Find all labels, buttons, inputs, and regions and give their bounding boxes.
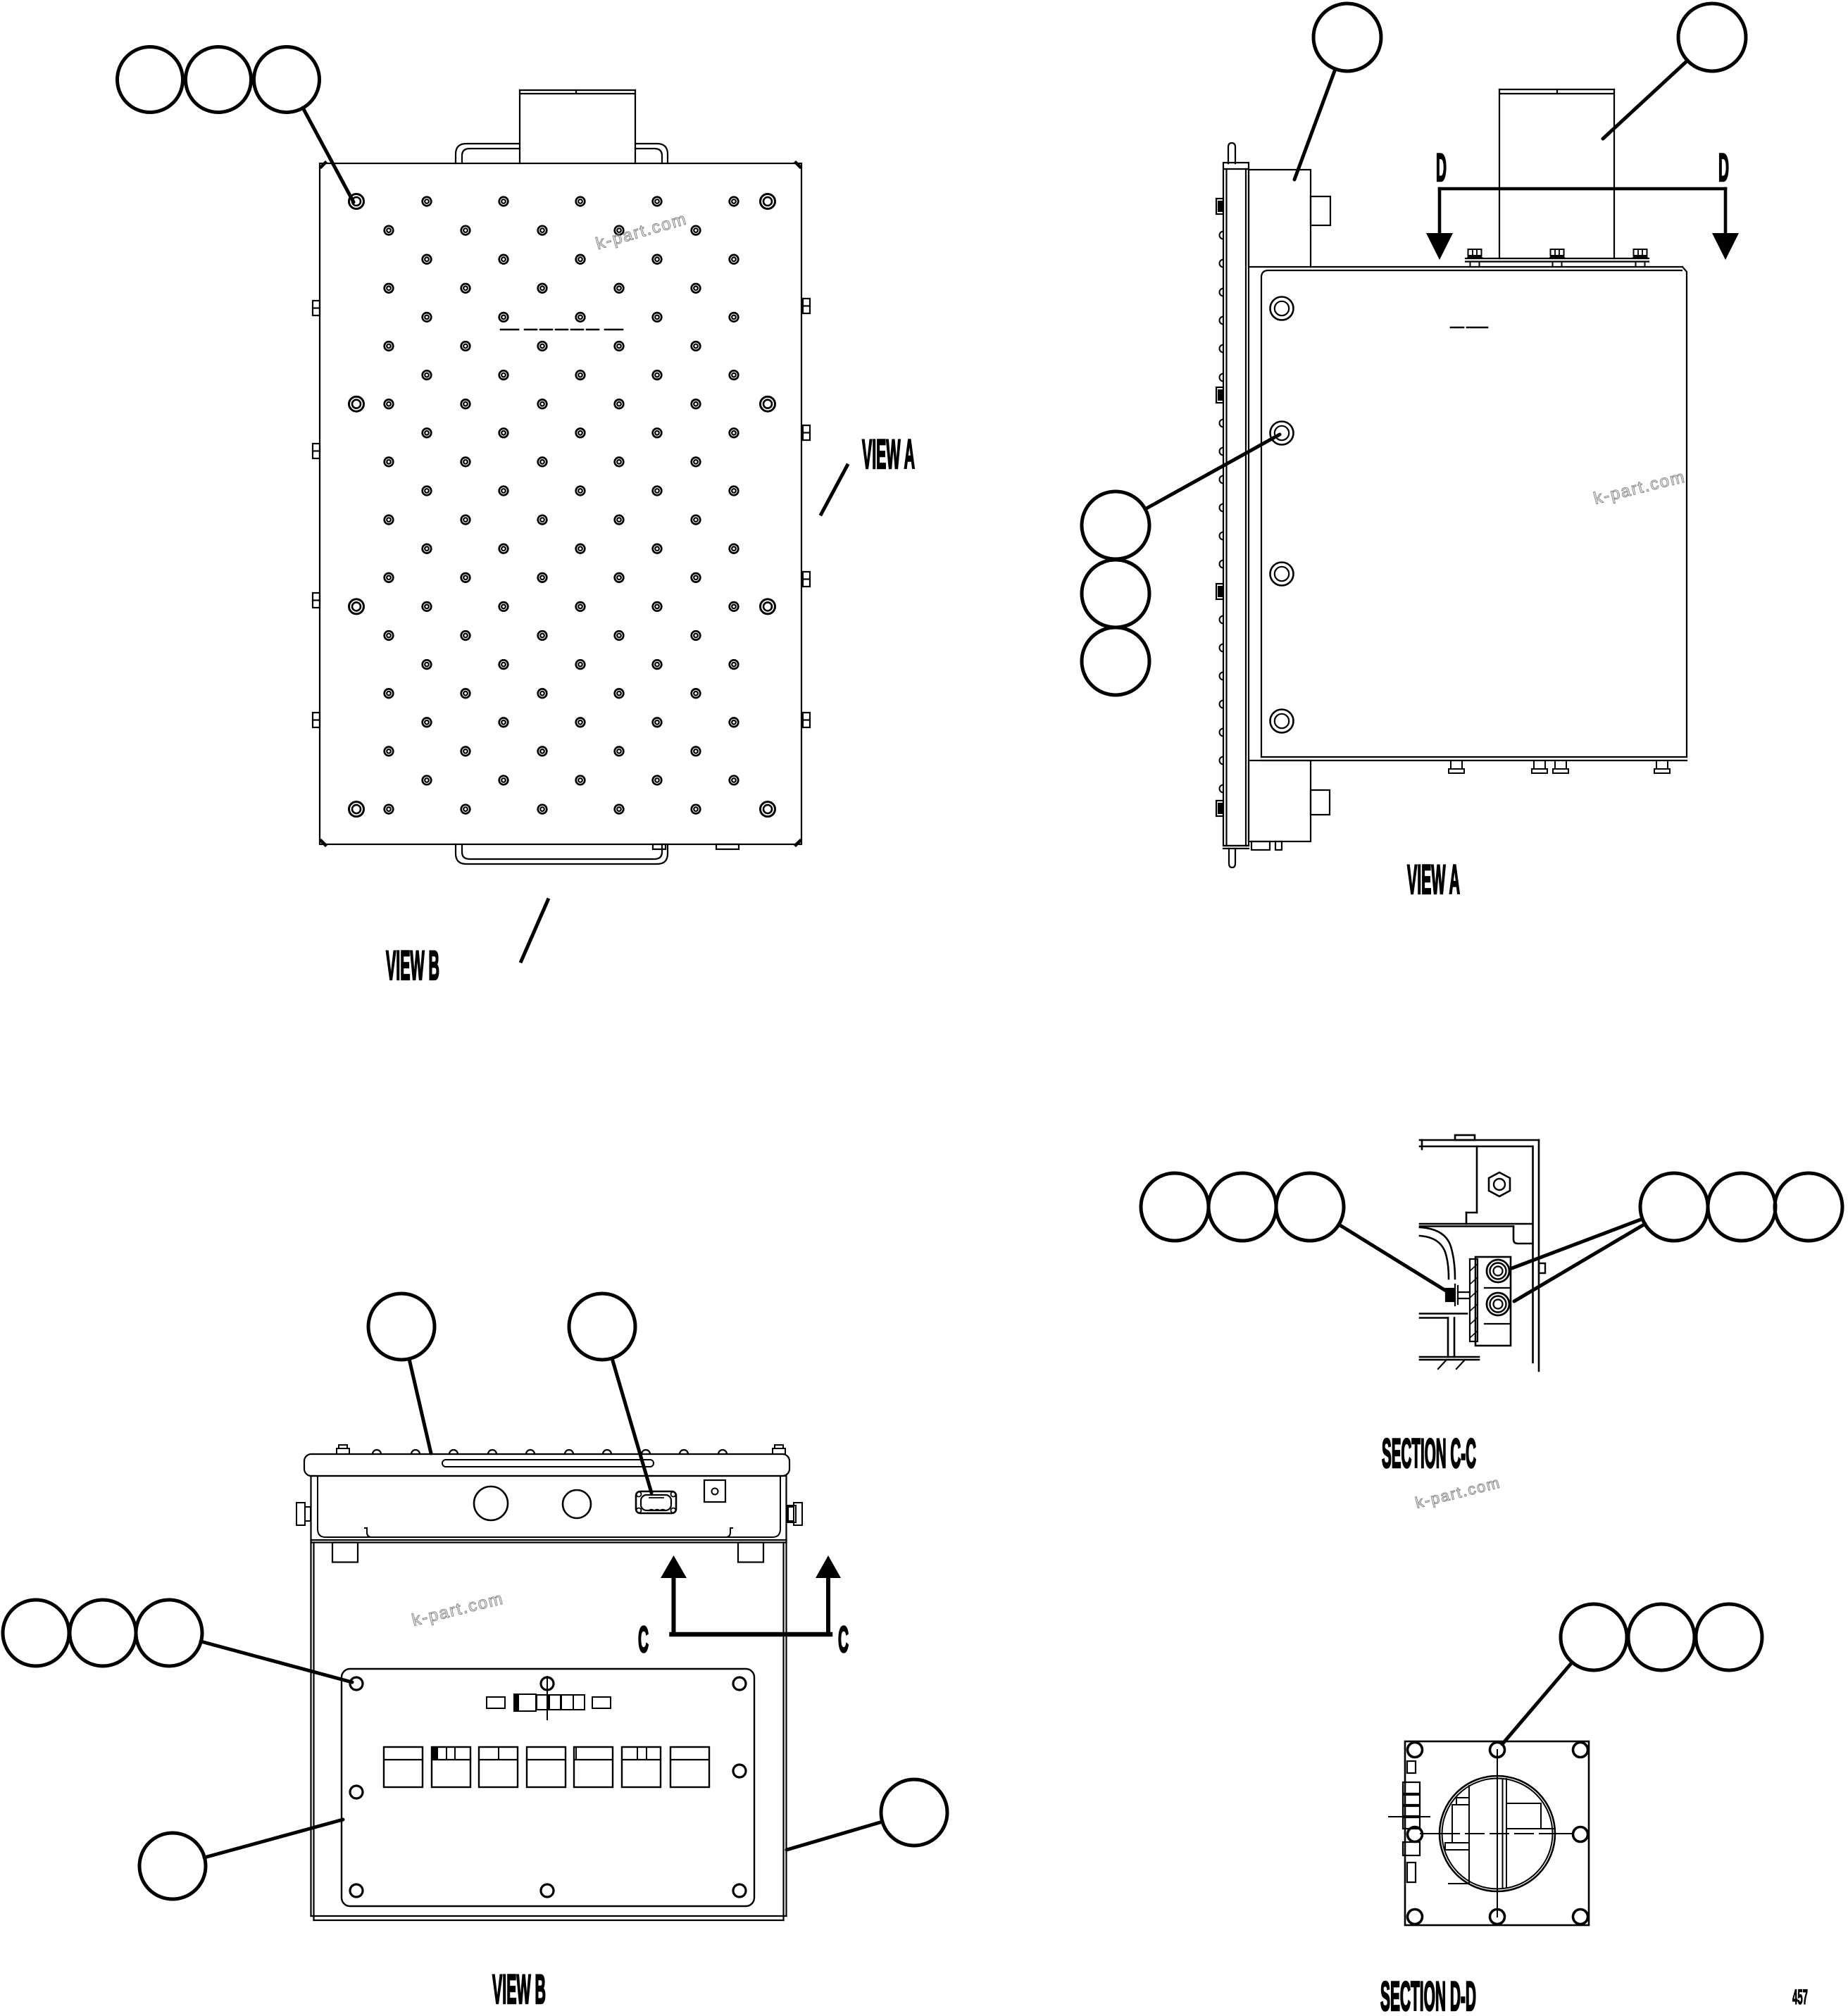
svg-text:VIEW A: VIEW A bbox=[1407, 857, 1460, 903]
svg-text:C: C bbox=[638, 1620, 649, 1660]
svg-text:457: 457 bbox=[1792, 1986, 1808, 2009]
svg-text:SECTION D-D: SECTION D-D bbox=[1380, 1974, 1476, 2016]
svg-text:D: D bbox=[1436, 145, 1447, 189]
svg-text:SECTION C-C: SECTION C-C bbox=[1382, 1431, 1476, 1477]
svg-text:VIEW A: VIEW A bbox=[862, 432, 915, 477]
svg-text:VIEW B: VIEW B bbox=[492, 1967, 546, 2012]
svg-text:D: D bbox=[1718, 145, 1729, 189]
svg-text:C: C bbox=[838, 1620, 849, 1660]
svg-text:VIEW B: VIEW B bbox=[386, 943, 439, 989]
